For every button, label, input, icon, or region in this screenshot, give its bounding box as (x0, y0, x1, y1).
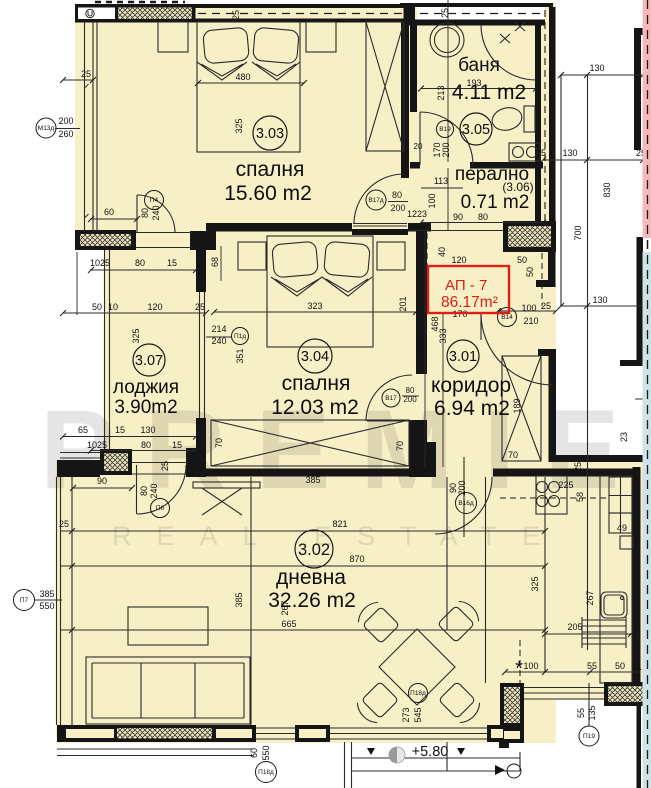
svg-text:П19: П19 (583, 733, 595, 740)
svg-text:135: 135 (587, 705, 597, 720)
svg-text:П18д: П18д (258, 769, 274, 776)
svg-text:1223: 1223 (407, 209, 427, 219)
svg-text:130: 130 (140, 425, 155, 435)
svg-text:П18д: П18д (410, 690, 426, 697)
svg-text:3.04: 3.04 (301, 349, 329, 365)
svg-text:385: 385 (305, 475, 320, 485)
svg-text:120: 120 (147, 302, 162, 312)
svg-text:200: 200 (58, 116, 73, 126)
svg-text:1025: 1025 (90, 258, 110, 268)
svg-text:60: 60 (104, 207, 114, 217)
svg-text:550: 550 (39, 601, 54, 611)
svg-text:15: 15 (167, 258, 177, 268)
svg-text:55: 55 (576, 708, 586, 718)
svg-text:60: 60 (249, 748, 259, 758)
svg-text:70: 70 (426, 450, 436, 460)
svg-text:550: 550 (261, 745, 271, 760)
svg-text:В19: В19 (439, 126, 451, 133)
svg-text:90: 90 (97, 476, 107, 486)
svg-text:дневна: дневна (276, 566, 346, 589)
svg-text:480: 480 (235, 72, 250, 82)
svg-text:70: 70 (508, 450, 518, 460)
svg-text:113: 113 (434, 176, 448, 186)
svg-text:50: 50 (615, 661, 625, 671)
svg-text:50: 50 (92, 302, 102, 312)
svg-text:В17д: В17д (368, 197, 384, 204)
svg-text:П1д: П1д (234, 333, 246, 340)
svg-text:4.11 m2: 4.11 m2 (452, 81, 526, 104)
svg-text:665: 665 (281, 619, 296, 629)
svg-text:193: 193 (466, 78, 481, 88)
svg-text:25: 25 (440, 8, 450, 18)
svg-text:+5.80: +5.80 (412, 744, 449, 760)
svg-text:П4: П4 (150, 197, 159, 204)
svg-text:М13д: М13д (38, 125, 55, 132)
svg-text:201: 201 (398, 296, 408, 311)
svg-text:80: 80 (139, 486, 149, 496)
svg-text:П6: П6 (156, 505, 165, 512)
svg-text:50: 50 (525, 267, 535, 277)
svg-text:70: 70 (214, 438, 224, 448)
svg-text:363: 363 (416, 338, 426, 353)
svg-text:333: 333 (438, 328, 448, 343)
svg-text:240: 240 (151, 205, 161, 220)
svg-text:лоджия: лоджия (113, 377, 179, 398)
svg-text:68: 68 (210, 257, 220, 267)
svg-text:267: 267 (280, 600, 290, 615)
svg-text:100: 100 (427, 193, 437, 208)
svg-text:25: 25 (81, 69, 91, 79)
svg-text:325: 325 (131, 328, 141, 343)
svg-text:240: 240 (211, 336, 226, 346)
svg-text:В17: В17 (385, 395, 397, 402)
svg-text:130: 130 (592, 295, 607, 305)
svg-text:700: 700 (573, 225, 583, 240)
svg-text:0.71 m2: 0.71 m2 (461, 192, 530, 213)
svg-text:50: 50 (517, 255, 527, 265)
svg-text:214: 214 (211, 324, 226, 334)
svg-text:80: 80 (141, 440, 151, 450)
svg-text:3.03: 3.03 (256, 126, 284, 142)
svg-text:3.90m2: 3.90m2 (114, 397, 177, 418)
svg-text:23: 23 (619, 432, 629, 442)
svg-text:25: 25 (536, 148, 546, 158)
svg-text:120: 120 (451, 255, 466, 265)
svg-text:385: 385 (39, 589, 54, 599)
svg-text:*: * (515, 658, 523, 680)
svg-text:15: 15 (172, 440, 182, 450)
svg-text:П7: П7 (20, 597, 29, 604)
svg-text:273: 273 (401, 707, 411, 722)
svg-text:10: 10 (108, 302, 118, 312)
svg-text:323: 323 (307, 301, 322, 311)
svg-text:3.02: 3.02 (298, 541, 330, 559)
svg-text:1025: 1025 (87, 440, 107, 450)
svg-text:325: 325 (234, 118, 244, 133)
svg-text:АП - 7: АП - 7 (445, 277, 487, 294)
svg-text:225: 225 (558, 480, 573, 490)
svg-text:баня: баня (458, 55, 500, 76)
svg-text:спалня: спалня (282, 372, 351, 395)
svg-text:25: 25 (541, 301, 551, 311)
svg-text:25: 25 (195, 302, 205, 312)
svg-text:189: 189 (512, 398, 522, 413)
svg-text:351: 351 (235, 348, 245, 363)
svg-text:25: 25 (160, 461, 170, 471)
svg-text:15: 15 (115, 425, 125, 435)
svg-text:870: 870 (349, 554, 364, 564)
svg-text:80: 80 (406, 386, 415, 395)
svg-text:200: 200 (457, 480, 467, 495)
svg-text:267: 267 (585, 590, 595, 605)
svg-text:3.05: 3.05 (462, 122, 490, 138)
svg-text:70: 70 (395, 441, 405, 451)
svg-text:(3.06): (3.06) (502, 180, 533, 194)
svg-text:58: 58 (575, 492, 585, 502)
svg-text:545: 545 (413, 707, 423, 722)
svg-text:830: 830 (602, 182, 612, 197)
svg-text:80: 80 (478, 212, 488, 222)
svg-text:130: 130 (562, 148, 577, 158)
svg-text:100: 100 (521, 303, 536, 313)
svg-text:130: 130 (589, 63, 604, 73)
svg-text:200: 200 (403, 395, 417, 404)
svg-text:80: 80 (135, 258, 145, 268)
svg-text:25: 25 (59, 519, 69, 529)
svg-text:200: 200 (390, 203, 405, 213)
svg-text:В16д: В16д (458, 500, 474, 507)
svg-text:90: 90 (453, 212, 463, 222)
svg-text:385: 385 (234, 592, 244, 607)
svg-text:6.94 m2: 6.94 m2 (434, 397, 510, 420)
svg-text:80: 80 (140, 208, 150, 218)
svg-text:821: 821 (332, 519, 347, 529)
svg-text:20: 20 (414, 142, 423, 151)
svg-text:100: 100 (523, 661, 538, 671)
svg-text:86.17m²: 86.17m² (441, 294, 498, 311)
svg-text:25: 25 (573, 462, 583, 472)
svg-text:200: 200 (441, 142, 451, 157)
svg-text:спалня: спалня (236, 158, 305, 181)
svg-text:3.07: 3.07 (135, 353, 163, 369)
svg-text:325: 325 (530, 576, 540, 591)
svg-text:240: 240 (149, 483, 159, 498)
svg-text:260: 260 (58, 129, 73, 139)
svg-text:25: 25 (231, 10, 241, 20)
svg-text:3.01: 3.01 (449, 349, 477, 365)
svg-text:40: 40 (437, 247, 447, 257)
svg-text:210: 210 (523, 316, 538, 326)
svg-text:65: 65 (78, 425, 88, 435)
svg-text:В14: В14 (501, 314, 513, 321)
svg-text:коридор: коридор (431, 374, 511, 397)
svg-text:213: 213 (436, 85, 446, 100)
svg-text:205: 205 (567, 622, 582, 632)
svg-text:12.03 m2: 12.03 m2 (271, 396, 359, 419)
svg-text:15.60 m2: 15.60 m2 (224, 182, 312, 205)
svg-text:49: 49 (617, 523, 627, 533)
svg-text:80: 80 (392, 190, 402, 200)
